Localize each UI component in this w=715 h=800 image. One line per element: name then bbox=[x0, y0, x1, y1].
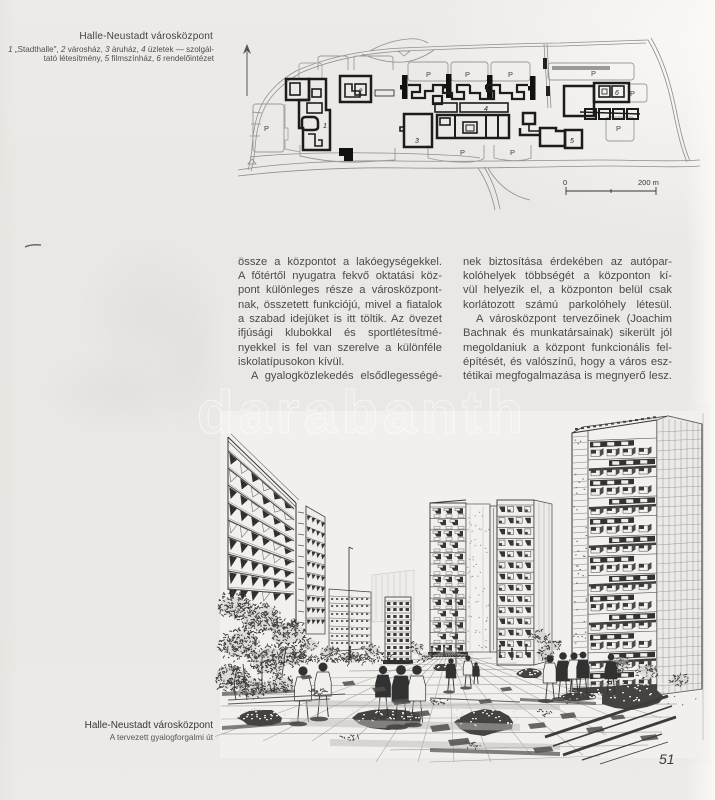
svg-text:P: P bbox=[630, 89, 635, 98]
svg-text:P: P bbox=[426, 70, 431, 79]
svg-text:P: P bbox=[508, 70, 513, 79]
svg-text:0: 0 bbox=[563, 178, 567, 187]
svg-text:6: 6 bbox=[615, 90, 619, 97]
svg-text:5: 5 bbox=[570, 138, 574, 145]
svg-text:P: P bbox=[616, 124, 621, 133]
svg-text:P: P bbox=[510, 148, 515, 157]
svg-text:4: 4 bbox=[484, 106, 488, 113]
svg-text:3: 3 bbox=[415, 138, 419, 145]
svg-text:200 m: 200 m bbox=[638, 178, 659, 187]
svg-text:P: P bbox=[460, 148, 465, 157]
svg-text:P: P bbox=[465, 70, 470, 79]
svg-text:2: 2 bbox=[358, 89, 363, 96]
svg-text:P: P bbox=[591, 69, 596, 78]
svg-text:P: P bbox=[264, 124, 269, 133]
svg-text:1: 1 bbox=[323, 123, 327, 130]
